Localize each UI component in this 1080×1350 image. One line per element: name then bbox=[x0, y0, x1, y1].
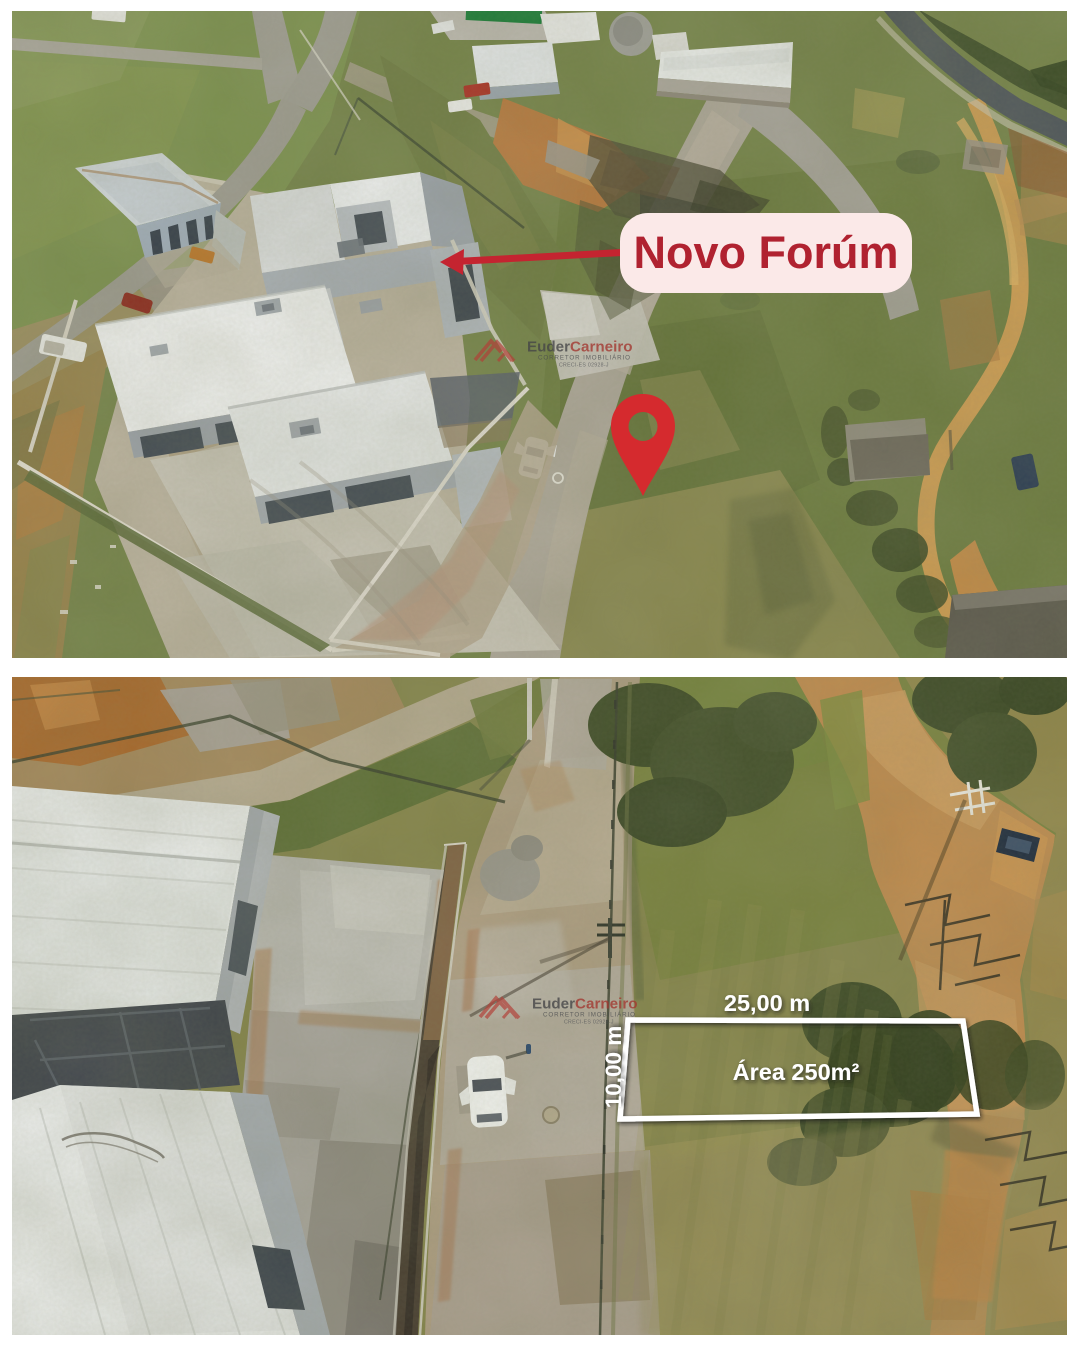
svg-text:10,00 m: 10,00 m bbox=[601, 1026, 626, 1109]
svg-text:Novo Forúm: Novo Forúm bbox=[634, 227, 899, 278]
svg-text:Área 250m²: Área 250m² bbox=[733, 1058, 860, 1085]
svg-text:25,00 m: 25,00 m bbox=[724, 990, 810, 1016]
